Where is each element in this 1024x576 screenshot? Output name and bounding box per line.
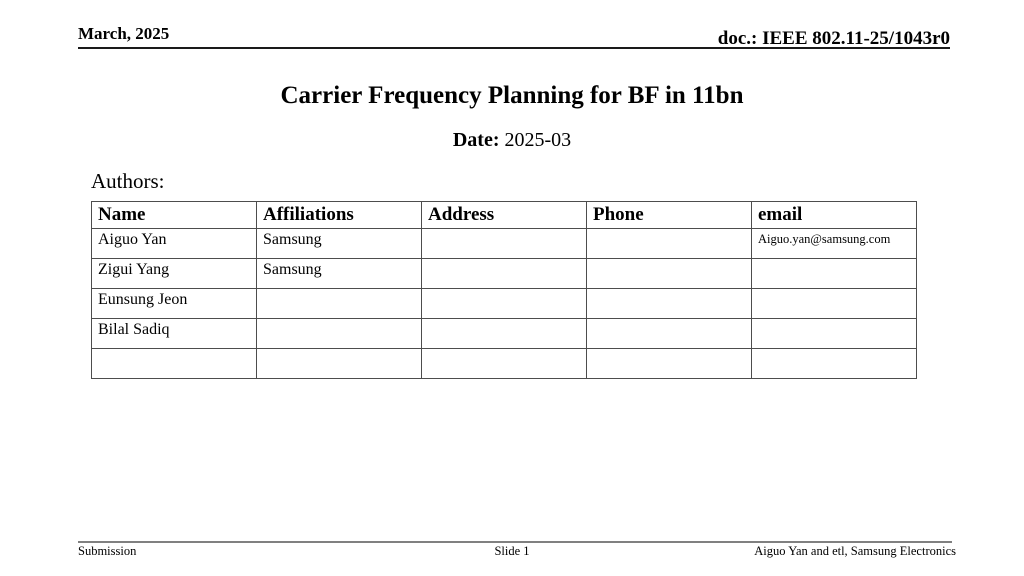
cell-email [752,349,917,379]
column-header-affiliations: Affiliations [257,202,422,229]
column-header-phone: Phone [587,202,752,229]
footer-attribution: Aiguo Yan and etl, Samsung Electronics [754,544,956,559]
header-date: March, 2025 [78,24,169,44]
cell-phone [587,349,752,379]
column-header-email: email [752,202,917,229]
header-doc-number: doc.: IEEE 802.11-25/1043r0 [718,28,950,50]
cell-email [752,319,917,349]
table-header-row: Name Affiliations Address Phone email [92,202,917,229]
cell-affiliations: Samsung [257,229,422,259]
cell-affiliations [257,349,422,379]
date-value: 2025-03 [504,129,571,151]
cell-address [422,349,587,379]
cell-name: Eunsung Jeon [92,289,257,319]
cell-name: Zigui Yang [92,259,257,289]
cell-name [92,349,257,379]
cell-email [752,259,917,289]
cell-address [422,319,587,349]
cell-phone [587,229,752,259]
cell-address [422,259,587,289]
table-row [92,349,917,379]
cell-email: Aiguo.yan@samsung.com [752,229,917,259]
cell-address [422,229,587,259]
cell-phone [587,259,752,289]
table-row: Bilal Sadiq [92,319,917,349]
cell-affiliations [257,319,422,349]
slide-canvas: March, 2025 doc.: IEEE 802.11-25/1043r0 … [0,0,1024,576]
authors-table: Name Affiliations Address Phone email Ai… [91,201,917,379]
cell-affiliations: Samsung [257,259,422,289]
cell-phone [587,319,752,349]
column-header-address: Address [422,202,587,229]
cell-phone [587,289,752,319]
date-line: Date: 2025-03 [0,129,1024,152]
footer-rule [78,541,952,543]
table-row: Zigui Yang Samsung [92,259,917,289]
cell-name: Aiguo Yan [92,229,257,259]
cell-email [752,289,917,319]
cell-affiliations [257,289,422,319]
table-row: Aiguo Yan Samsung Aiguo.yan@samsung.com [92,229,917,259]
table-row: Eunsung Jeon [92,289,917,319]
date-label: Date: [453,129,500,151]
slide-title: Carrier Frequency Planning for BF in 11b… [0,82,1024,110]
authors-label: Authors: [91,169,165,194]
cell-name: Bilal Sadiq [92,319,257,349]
cell-address [422,289,587,319]
footer-submission: Submission [78,544,136,559]
column-header-name: Name [92,202,257,229]
